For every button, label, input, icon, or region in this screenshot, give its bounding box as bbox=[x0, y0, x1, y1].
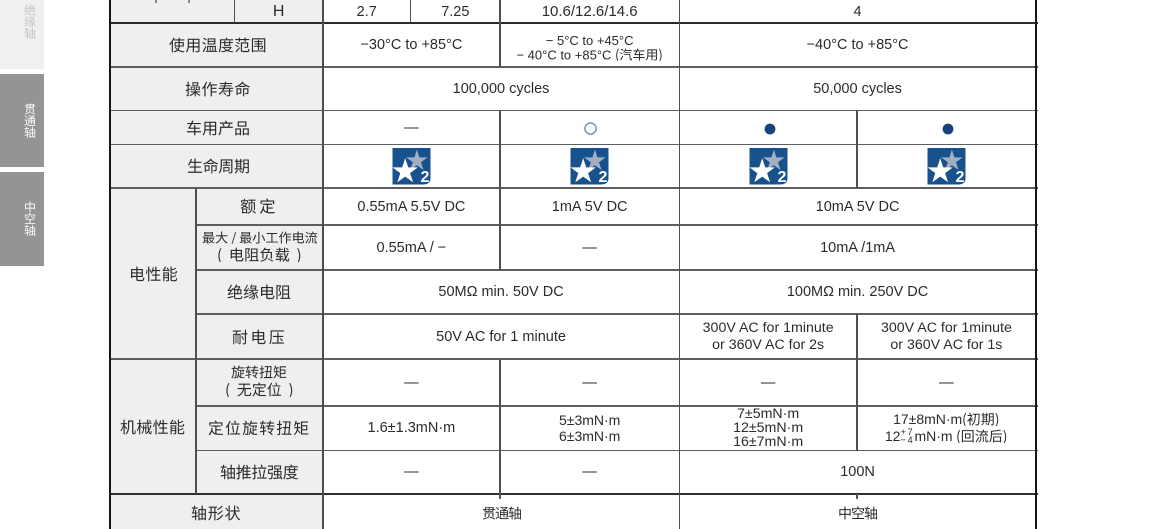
svg-text:2: 2 bbox=[599, 169, 608, 185]
svg-text:2: 2 bbox=[420, 169, 429, 185]
svg-text:2: 2 bbox=[955, 169, 964, 185]
svg-text:2: 2 bbox=[777, 169, 786, 185]
